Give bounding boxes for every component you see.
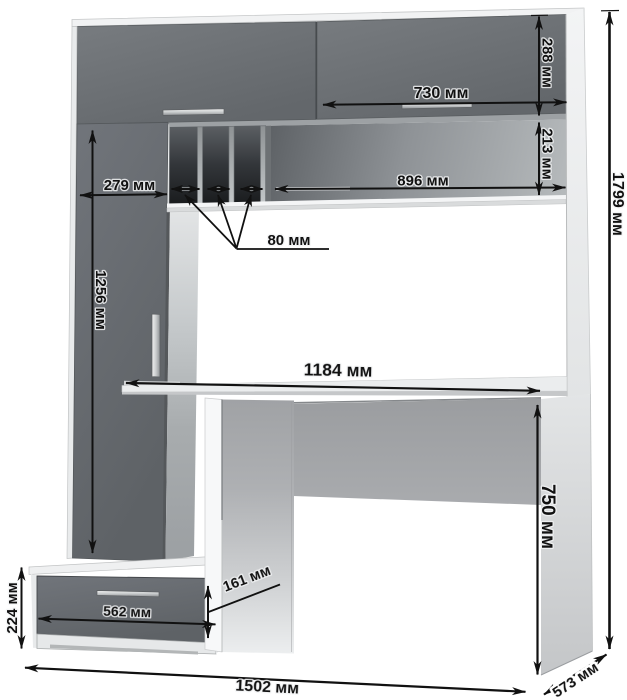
svg-text:288 мм: 288 мм [539, 38, 555, 88]
svg-text:1184 мм: 1184 мм [304, 359, 373, 380]
svg-text:896 мм: 896 мм [397, 173, 448, 190]
svg-text:750 мм: 750 мм [537, 484, 558, 549]
svg-text:730 мм: 730 мм [414, 85, 469, 102]
svg-text:224 мм: 224 мм [4, 582, 21, 633]
svg-text:279 мм: 279 мм [104, 177, 155, 194]
svg-text:80 мм: 80 мм [267, 232, 310, 249]
svg-text:1799 мм: 1799 мм [609, 172, 626, 236]
svg-text:1256 мм: 1256 мм [92, 270, 109, 330]
svg-text:1502 мм: 1502 мм [235, 677, 299, 697]
svg-text:213 мм: 213 мм [539, 128, 556, 179]
svg-text:562 мм: 562 мм [103, 603, 151, 621]
